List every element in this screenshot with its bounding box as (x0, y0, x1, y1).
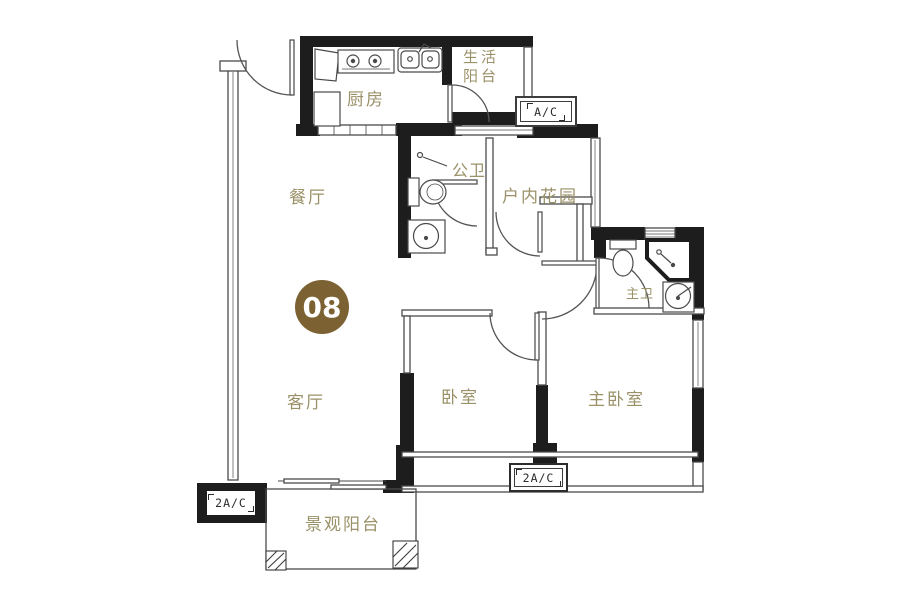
ac-unit-bottom-center: 2A/C (509, 463, 568, 492)
lifebalcony-door-leaf (448, 85, 452, 122)
unit-number-badge: 08 (295, 280, 349, 334)
bedroom-door-arc (490, 313, 537, 360)
wall-hall-nub (577, 204, 583, 264)
room-label-master-bedroom: 主卧室 (588, 391, 645, 411)
wall-kitchen-balcony-divider (442, 47, 452, 85)
masterbedroom-door-arc (542, 264, 597, 319)
entrance-door-leaf (290, 40, 294, 95)
corner-shower-icon (647, 240, 691, 280)
shower-head (657, 250, 661, 254)
sink-drain (408, 57, 413, 62)
window-garden-right (591, 138, 600, 227)
fridge-icon (315, 49, 339, 81)
balcony-posts (266, 541, 418, 570)
wall-bedroom-left-upper (404, 316, 410, 373)
wall-right-mid (692, 388, 704, 462)
room-label-kitchen: 厨房 (347, 91, 385, 111)
floor-plan-drawing (0, 0, 900, 600)
room-label-life-balcony-line2: 阳台 (463, 67, 499, 86)
shower-dot (671, 263, 674, 266)
wall-garden-bottom-left (486, 248, 497, 255)
sink-drain (428, 57, 433, 62)
toilet-tank (610, 240, 636, 249)
room-label-view-balcony: 景观阳台 (305, 516, 381, 536)
ac-unit-bottom-center-label: 2A/C (523, 471, 555, 485)
wall-masterbath-top-left (591, 227, 645, 240)
room-label-master-bath: 主卫 (626, 288, 654, 303)
toilet-tank (408, 178, 419, 206)
kitchen-fixtures (314, 44, 442, 126)
wall-top (300, 36, 533, 47)
stove-burner-dot (351, 59, 354, 62)
ac-unit-top: A/C (515, 96, 577, 127)
wall-garden-left (486, 138, 493, 252)
ac-unit-bottom-center-inner: 2A/C (514, 468, 563, 487)
window-lifebalcony-right (524, 47, 532, 98)
bedroom-door-leaf (535, 313, 539, 360)
sliding-door-panel-1 (284, 479, 339, 483)
ac-unit-top-inner: A/C (520, 101, 572, 122)
wash-basin-drain (677, 297, 680, 300)
sliding-door-panel-2 (331, 485, 386, 489)
stove-burner-dot (373, 59, 376, 62)
masterbedroom-door-leaf (542, 261, 597, 265)
garden-door-arc (496, 212, 540, 256)
room-label-indoor-garden: 户内花园 (502, 188, 578, 208)
vent-dot (418, 153, 423, 158)
window-under-lifebalcony (455, 126, 533, 135)
ac-unit-bottom-left-label: 2A/C (215, 496, 247, 510)
room-label-bedroom: 卧室 (441, 389, 479, 409)
room-label-life-balcony: 生活 阳台 (463, 48, 499, 86)
toilet-icon (613, 250, 633, 276)
ac-unit-top-label: A/C (534, 105, 558, 119)
wall-lifebalcony-bottom (452, 112, 517, 125)
room-label-living: 客厅 (287, 394, 325, 414)
ac-unit-bottom-left: 2A/C (205, 489, 257, 517)
masterbath-door-leaf (596, 258, 599, 308)
room-label-guest-bath: 公卫 (452, 162, 486, 180)
kitchen-cabinet-icon (314, 92, 340, 126)
wall-bedroom-top (402, 310, 492, 316)
window-bedrooms-bottom-inner (402, 452, 698, 457)
label-leader-line (423, 157, 447, 166)
floor-plan: 厨房 生活 阳台 餐厅 公卫 户内花园 主卫 客厅 卧室 主卧室 景观阳台 08… (0, 0, 900, 600)
garden-door-leaf (538, 212, 542, 252)
wall-kitchen-left (300, 36, 313, 135)
guest-bath-fixtures (408, 153, 447, 254)
wash-basin-drain (425, 237, 428, 240)
wall-bedroom-divider-lower (536, 385, 548, 453)
toilet-bowl-inner (427, 184, 443, 200)
stove-icon (338, 50, 394, 73)
room-label-life-balcony-line1: 生活 (463, 48, 499, 67)
room-label-dining: 餐厅 (289, 189, 327, 209)
